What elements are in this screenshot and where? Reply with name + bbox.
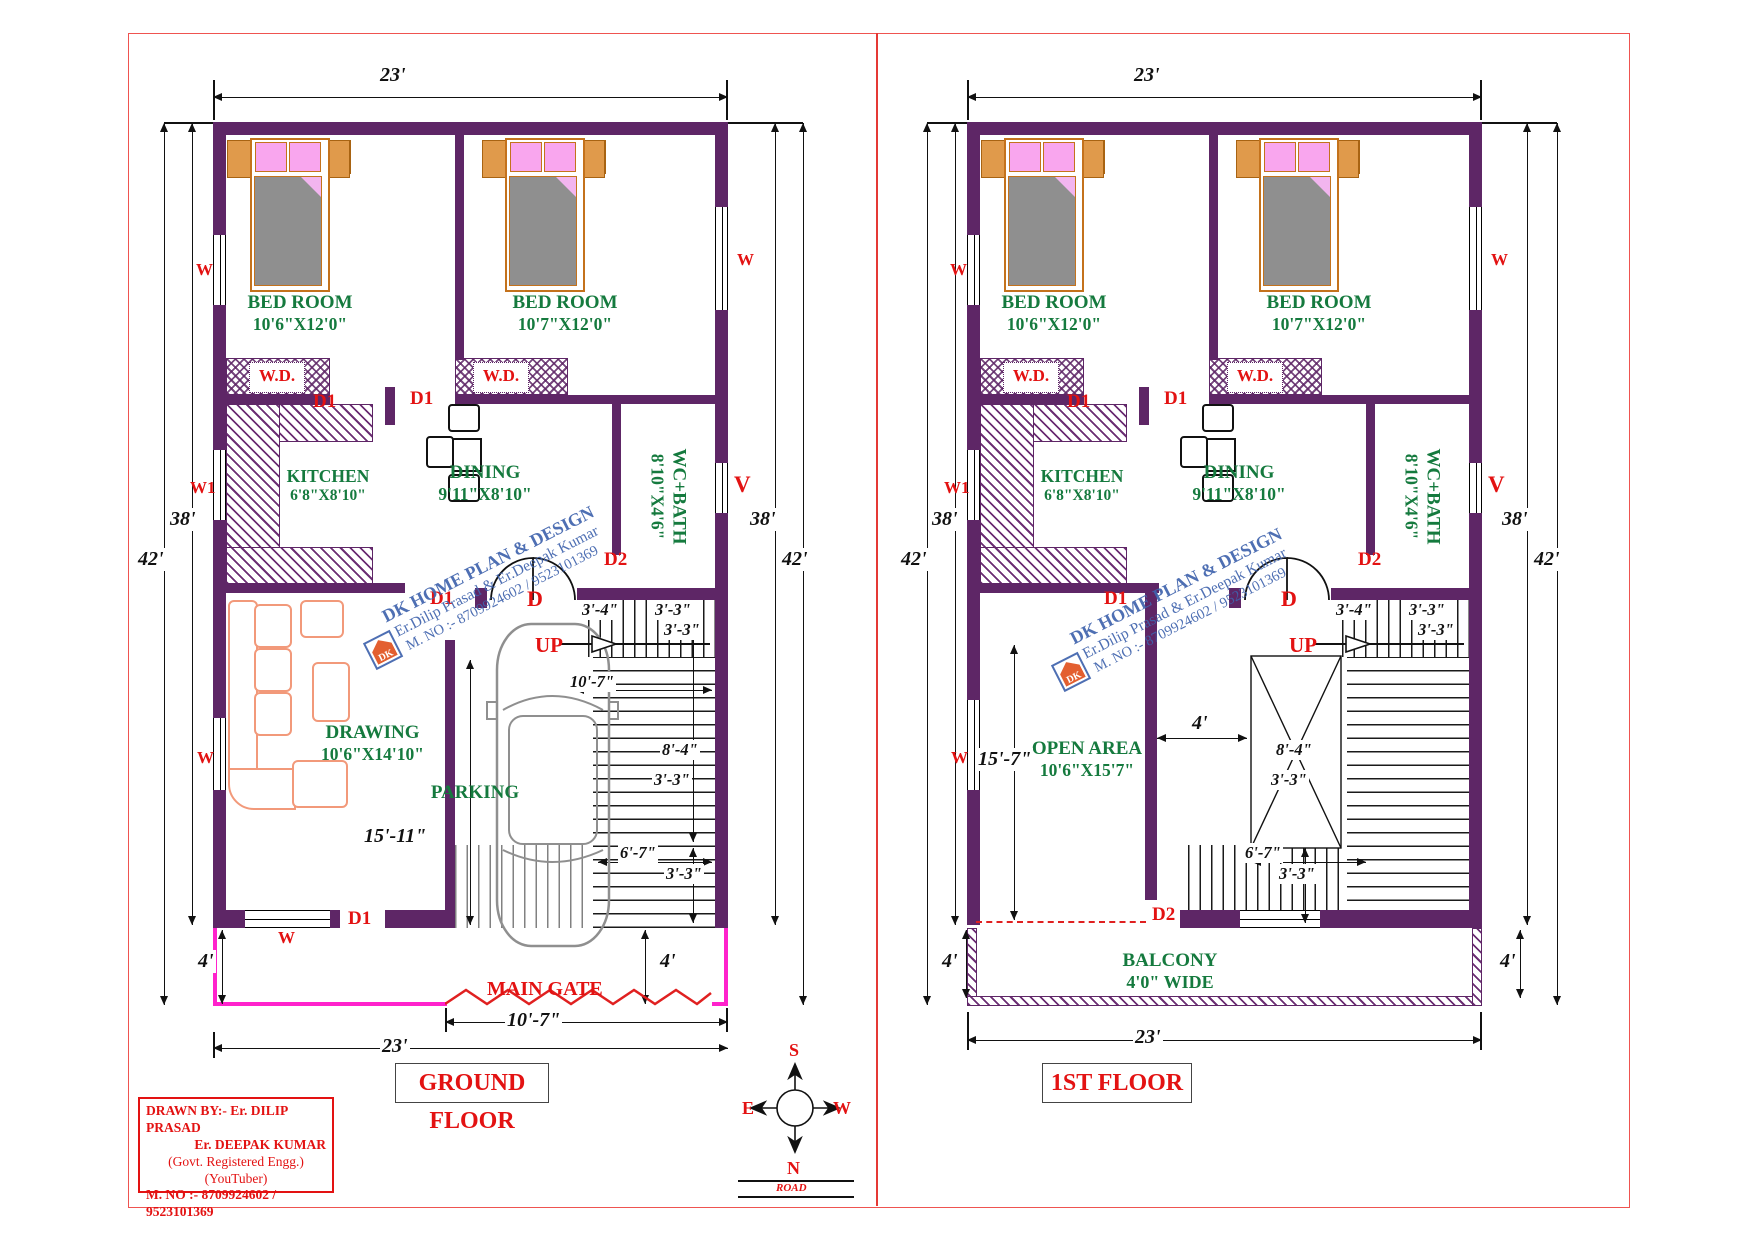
kitchen-counter bbox=[226, 547, 373, 585]
floor-plan-sheet: W.D. W.D. BED ROOM10'6"X12' bbox=[0, 0, 1755, 1240]
dim-23: 23' bbox=[378, 64, 408, 87]
dim-stair: 10'-7" bbox=[568, 672, 616, 692]
dim-4: 4' bbox=[940, 950, 960, 973]
dim-line bbox=[693, 848, 694, 923]
floor-title-ground: GROUND FLOOR bbox=[395, 1063, 549, 1103]
dim-38: 38' bbox=[1500, 508, 1530, 531]
compass-west: W bbox=[833, 1098, 851, 1119]
dim-stair: 3'-3" bbox=[662, 620, 702, 640]
dim-stair: 3'-4" bbox=[580, 600, 620, 620]
dim-line-open bbox=[1014, 645, 1015, 920]
window-ventilator bbox=[1469, 463, 1482, 513]
wardrobe-label: W.D. bbox=[473, 362, 529, 393]
door-label-d1: D1 bbox=[1164, 388, 1187, 410]
dim-stair: 8'-4" bbox=[660, 740, 700, 760]
kitchen-counter bbox=[980, 547, 1127, 585]
sofa-cushion bbox=[254, 604, 292, 648]
door-label-d1: D1 bbox=[313, 391, 336, 413]
armchair bbox=[300, 600, 344, 638]
dim-stair: 6'-7" bbox=[618, 843, 658, 863]
dim-line-4 bbox=[1520, 930, 1521, 998]
wardrobe-label: W.D. bbox=[249, 362, 305, 393]
up-arrow-line bbox=[1314, 643, 1464, 645]
dim-4: 4' bbox=[196, 950, 216, 973]
dim-line-23 bbox=[213, 97, 728, 98]
dining-chair bbox=[1202, 404, 1234, 432]
wall bbox=[385, 387, 395, 425]
title-block: DRAWN BY:- Er. DILIP PRASAD Er. DEEPAK K… bbox=[138, 1097, 334, 1193]
room-label-balcony: BALCONY4'0" WIDE bbox=[1095, 950, 1245, 994]
door-label-d: D bbox=[1281, 586, 1297, 612]
compass-east: E bbox=[742, 1098, 754, 1119]
dim-23: 23' bbox=[1133, 1026, 1163, 1049]
room-label-kitchen: KITCHEN6'8"X8'10" bbox=[278, 466, 378, 505]
title-block-author2: Er. DEEPAK KUMAR bbox=[146, 1137, 326, 1154]
wall-entry bbox=[577, 588, 715, 600]
wardrobe-label: W.D. bbox=[1227, 362, 1283, 393]
porch-wall bbox=[712, 1002, 728, 1006]
balcony-wall bbox=[1472, 928, 1482, 1006]
dim-stair: 8'-4" bbox=[1274, 740, 1314, 760]
wall bbox=[967, 583, 1159, 593]
dim-line-4 bbox=[966, 930, 967, 998]
window-label-w: W bbox=[951, 748, 968, 768]
window-label-v: V bbox=[1488, 472, 1505, 498]
room-label-dining: DINING9'11"X8'10" bbox=[420, 462, 550, 505]
dim-gate-107: 10'-7" bbox=[505, 1009, 562, 1032]
title-block-phone: M. NO :- 8709924602 / 9523101369 bbox=[146, 1187, 326, 1221]
window-label-w: W bbox=[737, 250, 754, 270]
dim-38: 38' bbox=[930, 508, 960, 531]
window-label-w: W bbox=[278, 928, 295, 948]
bed bbox=[250, 138, 330, 292]
window-label-w1: W1 bbox=[190, 478, 216, 498]
wall bbox=[213, 583, 405, 593]
porch-wall bbox=[213, 1002, 447, 1006]
door-label-d2: D2 bbox=[1358, 549, 1381, 571]
window-label-w: W bbox=[197, 748, 214, 768]
dim-line bbox=[693, 630, 694, 842]
up-arrow-head bbox=[1344, 634, 1374, 654]
nightstand bbox=[227, 140, 251, 178]
dim-line-23 bbox=[967, 97, 1482, 98]
window-ventilator bbox=[715, 463, 728, 513]
window bbox=[967, 235, 980, 305]
wall bbox=[213, 122, 728, 135]
wall bbox=[967, 122, 1482, 135]
stair-up-label: UP bbox=[1289, 633, 1317, 658]
sofa-cushion bbox=[254, 692, 292, 736]
dim-42: 42' bbox=[899, 548, 929, 571]
dim-38: 38' bbox=[168, 508, 198, 531]
window-label-w: W bbox=[1491, 250, 1508, 270]
balcony-wall bbox=[967, 996, 1482, 1006]
stair-up-label: UP bbox=[535, 633, 563, 658]
dim-open-157: 15'-7" bbox=[976, 748, 1033, 771]
dim-stair: 3'-3" bbox=[652, 770, 692, 790]
window bbox=[1469, 207, 1482, 310]
wall bbox=[330, 910, 340, 928]
window-label-v: V bbox=[734, 472, 751, 498]
road-label: ROAD bbox=[776, 1182, 807, 1194]
dim-stair: 3'-4" bbox=[1334, 600, 1374, 620]
coffee-table bbox=[312, 662, 350, 722]
dim-42: 42' bbox=[136, 548, 166, 571]
window bbox=[967, 700, 980, 790]
dim-parking-1511: 15'-11" bbox=[362, 825, 428, 848]
window-label-w1: W1 bbox=[944, 478, 970, 498]
sofa-corner bbox=[228, 768, 296, 810]
balcony-opening bbox=[976, 921, 1146, 923]
door-label-d1: D1 bbox=[1067, 391, 1090, 413]
panel-divider bbox=[876, 33, 878, 1206]
dim-passage-4: 4' bbox=[1190, 712, 1210, 735]
wall-wc bbox=[1366, 404, 1375, 555]
sofa-cushion bbox=[254, 648, 292, 692]
dim-line-passage bbox=[1157, 738, 1247, 739]
title-block-yt: (YouTuber) bbox=[146, 1171, 326, 1188]
porch-wall bbox=[724, 928, 728, 1006]
compass-north: N bbox=[787, 1158, 800, 1179]
dim-stair: 6'-7" bbox=[1243, 843, 1283, 863]
bed bbox=[1259, 138, 1339, 292]
room-label-drawing: DRAWING10'6"X14'10" bbox=[300, 722, 445, 765]
room-label-bedroom2: BED ROOM10'7"X12'0" bbox=[1244, 292, 1394, 335]
wall bbox=[1209, 395, 1469, 404]
window bbox=[245, 910, 330, 928]
wall-wc bbox=[612, 404, 621, 555]
dim-stair: 3'-3" bbox=[1416, 620, 1456, 640]
dim-stair: 3'-3" bbox=[653, 600, 693, 620]
room-label-bedroom1: BED ROOM10'6"X12'0" bbox=[230, 292, 370, 335]
door-label-d1: D1 bbox=[348, 908, 371, 930]
wall-entry bbox=[1331, 588, 1469, 600]
wall bbox=[213, 910, 245, 928]
wall bbox=[1320, 910, 1476, 928]
dim-line-4 bbox=[222, 930, 223, 1004]
wall-drawing bbox=[445, 640, 455, 918]
up-arrow-head bbox=[590, 634, 620, 654]
dim-38: 38' bbox=[748, 508, 778, 531]
stair-flight-right bbox=[1347, 657, 1469, 928]
dim-stair: 3'-3" bbox=[1407, 600, 1447, 620]
door-label-d1: D1 bbox=[410, 388, 433, 410]
dim-line bbox=[1305, 848, 1306, 923]
wall-bed-partition bbox=[455, 135, 464, 360]
wardrobe-label: W.D. bbox=[1003, 362, 1059, 393]
dining-chair bbox=[448, 404, 480, 432]
door-label-d2: D2 bbox=[1152, 904, 1175, 926]
wall bbox=[1139, 387, 1149, 425]
title-block-drawn-by: DRAWN BY:- Er. DILIP PRASAD bbox=[146, 1103, 326, 1137]
window bbox=[213, 718, 226, 790]
wall bbox=[455, 395, 715, 404]
room-label-bedroom2: BED ROOM10'7"X12'0" bbox=[490, 292, 640, 335]
room-label-kitchen: KITCHEN6'8"X8'10" bbox=[1032, 466, 1132, 505]
dim-23: 23' bbox=[380, 1035, 410, 1058]
nightstand bbox=[482, 140, 506, 178]
window bbox=[213, 235, 226, 305]
room-label-parking: PARKING bbox=[415, 782, 535, 804]
title-block-reg: (Govt. Registered Engg.) bbox=[146, 1154, 326, 1171]
bed bbox=[1004, 138, 1084, 292]
dim-stair: 3'-3" bbox=[1269, 770, 1309, 790]
dim-line-23b bbox=[967, 1040, 1482, 1041]
floor-title-first: 1ST FLOOR bbox=[1042, 1063, 1192, 1103]
road-line bbox=[738, 1196, 854, 1198]
dim-42: 42' bbox=[1532, 548, 1562, 571]
dim-4: 4' bbox=[1498, 950, 1518, 973]
nightstand bbox=[1236, 140, 1260, 178]
dim-4: 4' bbox=[658, 950, 678, 973]
room-label-wcbath: WC+BATH8'10"X4'6" bbox=[646, 422, 689, 572]
sofa-cushion bbox=[292, 760, 348, 808]
room-label-bedroom1: BED ROOM10'6"X12'0" bbox=[984, 292, 1124, 335]
room-label-dining: DINING9'11"X8'10" bbox=[1174, 462, 1304, 505]
dim-stair: 3'-3" bbox=[664, 864, 704, 884]
window-label-w: W bbox=[950, 260, 967, 280]
dim-23: 23' bbox=[1132, 64, 1162, 87]
wall-bed-partition bbox=[1209, 135, 1218, 360]
window-label-w: W bbox=[196, 260, 213, 280]
window bbox=[715, 207, 728, 310]
bed bbox=[505, 138, 585, 292]
dim-42: 42' bbox=[780, 548, 810, 571]
wall bbox=[1180, 910, 1240, 928]
room-label-open-area: OPEN AREA10'6"X15'7" bbox=[1022, 738, 1152, 781]
dim-stair: 3'-3" bbox=[1277, 864, 1317, 884]
main-gate-label: MAIN GATE bbox=[487, 978, 603, 1001]
room-label-wcbath: WC+BATH8'10"X4'6" bbox=[1400, 422, 1443, 572]
dim-line-gate bbox=[445, 1022, 728, 1023]
nightstand bbox=[981, 140, 1005, 178]
dim-line-23b bbox=[213, 1048, 728, 1049]
compass-south: S bbox=[789, 1040, 799, 1061]
